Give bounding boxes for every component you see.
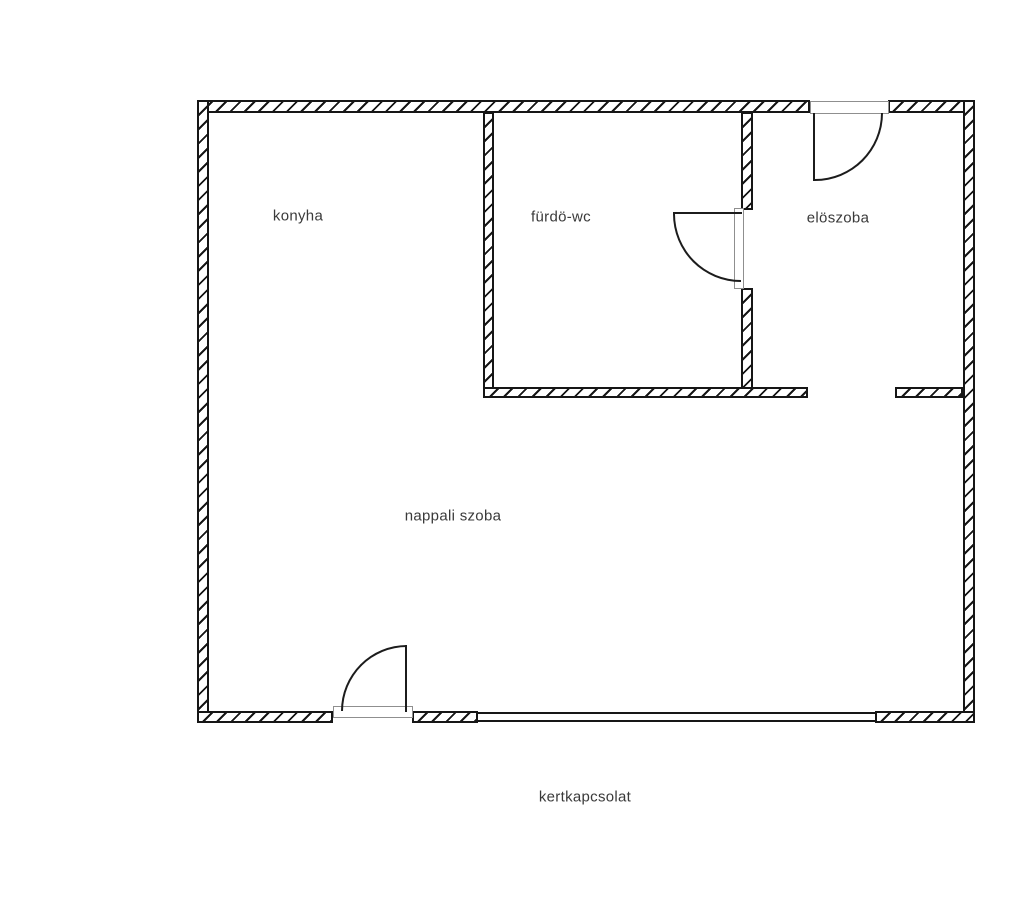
garden-glass-opening bbox=[478, 712, 875, 722]
wall-left bbox=[197, 100, 209, 723]
bathroom-door-swing-arc bbox=[673, 214, 741, 282]
room-label-eloszoba: elöszoba bbox=[807, 210, 869, 227]
wall-top-right bbox=[888, 100, 975, 113]
floor-plan: konyha fürdö-wc elöszoba nappali szoba k… bbox=[0, 0, 1024, 918]
wall-right bbox=[963, 100, 975, 723]
wall-bottom-mid bbox=[412, 711, 478, 723]
room-label-konyha: konyha bbox=[273, 208, 323, 225]
wall-divider-bath-hall-lower bbox=[741, 288, 753, 398]
caption-kertkapcsolat: kertkapcsolat bbox=[539, 789, 631, 806]
wall-top-left bbox=[197, 100, 810, 113]
wall-bottom-left bbox=[197, 711, 333, 723]
wall-mid-right bbox=[895, 387, 963, 398]
room-label-furdo-wc: fürdö-wc bbox=[531, 209, 591, 226]
wall-mid-left bbox=[483, 387, 808, 398]
entry-door-swing-arc bbox=[815, 113, 883, 181]
terrace-door-swing-arc bbox=[341, 645, 407, 711]
room-label-nappali-szoba: nappali szoba bbox=[405, 508, 501, 525]
wall-divider-kitchen-bath bbox=[483, 112, 494, 397]
wall-divider-bath-hall-upper bbox=[741, 112, 753, 210]
wall-bottom-right bbox=[875, 711, 975, 723]
